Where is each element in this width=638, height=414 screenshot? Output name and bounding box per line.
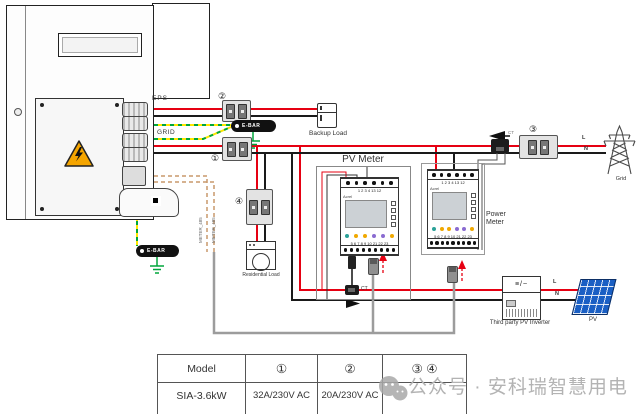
- grid-ct-label: CT: [508, 131, 514, 136]
- meter-leds: [432, 227, 474, 231]
- breaker-lever: [226, 104, 235, 119]
- pvmeter-usb-connector: [368, 258, 379, 275]
- table-cell-breaker1-spec: 32A/230V AC: [246, 383, 318, 414]
- powermeter-usb-arrowhead: [458, 260, 466, 269]
- bolt-icon: [235, 124, 239, 128]
- terminal-strip: [341, 245, 398, 255]
- panel-screw: [40, 103, 44, 107]
- fridge-divider: [318, 112, 336, 113]
- wifi-dongle: [119, 188, 179, 217]
- grid-tower-icon: [604, 126, 635, 174]
- breaker-4: [246, 189, 273, 225]
- third-party-pv-inverter-label: Third party PV Inverter: [478, 320, 562, 327]
- terminal-numbers-top: 1 2 3 4 13 12: [428, 180, 478, 185]
- meter-indicator: [391, 222, 396, 227]
- ct-slot: [496, 147, 504, 151]
- pv-line-n-label: N: [555, 291, 559, 297]
- table-cell-model: SIA-3.6kW: [158, 383, 246, 414]
- inverter-pad: [506, 300, 516, 307]
- breaker-lever: [540, 140, 549, 155]
- qr-code: [151, 196, 161, 206]
- meter-indicator: [471, 207, 476, 212]
- fridge-handle: [320, 106, 322, 110]
- earth-bar-label: E-BAR: [242, 123, 260, 129]
- ct-slot: [348, 288, 355, 292]
- third-party-pv-inverter-icon: ≡/~: [502, 276, 541, 320]
- breaker-2-number: ②: [218, 91, 226, 102]
- terminal-numbers-top: 1 2 3 4 13 12: [341, 188, 398, 193]
- meter-lcd: [432, 192, 467, 220]
- meter-brand: Acrel: [343, 194, 352, 199]
- earth-bar-top: E-BAR: [231, 120, 276, 132]
- power-meter-device: 1 2 3 4 13 12 Acrel 5 6 7 8 9 10 21 22 2…: [427, 169, 479, 249]
- breaker-lever: [239, 142, 248, 157]
- meter-indicator: [471, 214, 476, 219]
- breaker-4-number: ④: [235, 196, 243, 207]
- watermark-text: 公众号 · 安科瑞智慧用电: [408, 372, 628, 399]
- residential-load-label: Residential Load: [231, 273, 291, 279]
- bolt-icon: [140, 249, 144, 253]
- inverter-grille: [506, 309, 537, 317]
- inverter-divider: [503, 292, 540, 293]
- meter-face: Acrel: [428, 185, 478, 233]
- grid-port-connector: [122, 147, 148, 162]
- earth-symbol-bottom: [150, 257, 164, 273]
- grid-ct-clamp: [491, 139, 509, 153]
- panel-screw: [115, 103, 119, 107]
- grid-port-label: GRID: [157, 129, 175, 136]
- grid-label: Grid: [607, 176, 635, 182]
- dc-ac-symbol: ≡/~: [503, 281, 540, 288]
- washer-controls: [247, 242, 275, 250]
- pv-meter-label: PV Meter: [328, 154, 398, 165]
- power-meter-label: Power Meter: [486, 211, 518, 226]
- wiring-diagram: EPS GRID ② ① ③ ④ E-BAR E-BAR Backup Load…: [0, 0, 638, 414]
- grid-port-connector: [122, 133, 148, 148]
- meter-face: Acrel: [341, 193, 398, 240]
- meter-indicator: [391, 215, 396, 220]
- breaker-2: [222, 100, 251, 122]
- wire-gridct-secondary-2: [482, 152, 505, 250]
- pv-ct-clamp: [345, 285, 359, 295]
- inverter-display: [58, 33, 142, 57]
- table-cell-breaker2-spec: 20A/230V AC: [318, 383, 383, 414]
- terminal-strip: [428, 170, 478, 180]
- breaker-1: [222, 137, 252, 161]
- inverter-mount-bracket: [152, 3, 210, 99]
- table-header-2: ②: [318, 355, 383, 383]
- pv-meter-device: 1 2 3 4 13 12 Acrel 5 6 7 8 9 10 21 22 2…: [340, 177, 399, 256]
- breaker-lever: [249, 200, 258, 215]
- pv-ct-label: CT: [361, 287, 368, 293]
- washer-drum: [252, 253, 270, 271]
- powermeter-usb-connector: [447, 266, 458, 283]
- table-header-model: Model: [158, 355, 246, 383]
- backup-load-icon: [317, 103, 337, 128]
- pv-label: PV: [580, 317, 606, 324]
- earth-bar-label: E-BAR: [147, 248, 165, 254]
- meter-indicator: [471, 200, 476, 205]
- breaker-3-number: ③: [529, 124, 537, 135]
- breaker-lever: [227, 142, 236, 157]
- inverter-screw: [14, 108, 22, 116]
- meter-indicator: [471, 193, 476, 198]
- meter-indicator: [391, 208, 396, 213]
- breaker-lever: [238, 104, 247, 119]
- warning-triangle-icon: [64, 140, 94, 168]
- eps-port-connector: [122, 116, 148, 131]
- meter-brand: Acrel: [430, 186, 439, 191]
- table-header-1: ①: [246, 355, 318, 383]
- earth-bar-bottom: E-BAR: [136, 245, 179, 257]
- grid-line-l-label: L: [582, 135, 585, 141]
- inverter-front-panel: [35, 98, 124, 216]
- panel-screw: [40, 207, 44, 211]
- grid-line-n-label: N: [584, 146, 588, 152]
- terminal-strip: [341, 178, 398, 188]
- pvmeter-ct-plug: [348, 256, 356, 269]
- meter-indicator: [391, 201, 396, 206]
- meter-lcd: [345, 200, 387, 228]
- rs485-label-b: METER_485: [211, 217, 216, 243]
- breaker-3: [519, 135, 558, 159]
- residential-load-icon: [246, 241, 276, 270]
- backup-load-label: Backup Load: [299, 130, 357, 137]
- comm-port-gland: [122, 166, 146, 186]
- breaker-lever: [261, 200, 270, 215]
- eps-label: EPS: [152, 95, 168, 102]
- terminal-strip: [428, 238, 478, 248]
- eps-port-connector: [122, 102, 148, 117]
- fridge-handle: [320, 115, 322, 121]
- rs485-label-a: METER_485: [198, 217, 203, 243]
- breaker-lever: [528, 140, 537, 155]
- wechat-icon: [377, 374, 409, 406]
- breaker-1-number: ①: [211, 153, 219, 164]
- pv-line-l-label: L: [553, 279, 556, 285]
- meter-leds: [345, 234, 394, 238]
